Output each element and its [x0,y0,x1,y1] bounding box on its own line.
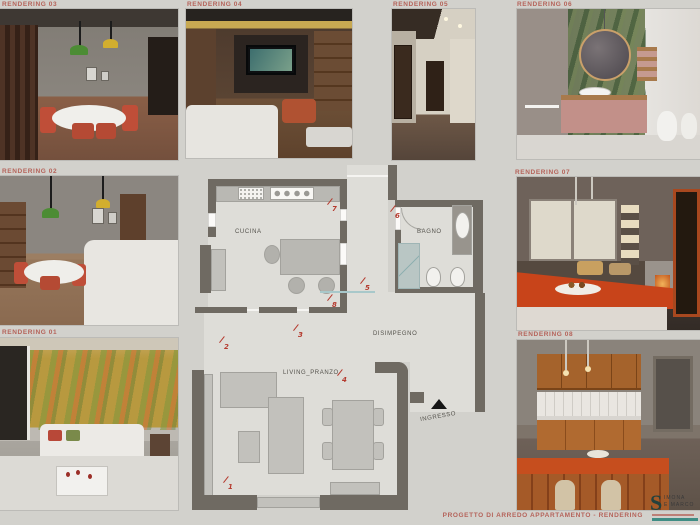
wall-frame [92,208,104,224]
green-cushion [66,430,80,441]
wall-frame [108,212,117,224]
doorway-shape [148,37,178,115]
lower-cabinets [537,420,641,450]
wall [397,397,408,510]
rendering-02-image [0,176,178,325]
designer-logo: S IMONA E MARCO [650,492,698,523]
room-label-disimpegno: DISIMPEGNO [373,331,417,337]
wall [208,186,216,213]
red-chair [40,276,60,290]
orange-chair [282,99,316,123]
wall [309,307,347,313]
wall [195,307,247,313]
pendant-cord [565,340,567,370]
window [0,346,30,440]
rendering-04-label: RENDERING 04 [187,1,242,9]
rendering-08-image [517,340,700,510]
bidet [681,113,697,139]
rendering-08-label: RENDERING 08 [518,331,573,339]
rendering-03-label: RENDERING 03 [2,1,57,9]
red-cushion [48,430,62,441]
end-door [426,61,444,111]
logo-tagline-rule [652,514,694,516]
wall [410,392,424,403]
floor-plan: CUCINA BAGNO DISIMPEGNO LIVING_PRANZO IN… [180,165,512,515]
wall [320,495,408,510]
presentation-board: RENDERING 03 RENDERING 04 RENDERING 05 R… [0,0,700,525]
red-chair [96,123,116,139]
bath-sink-plan [455,212,470,239]
towel-rail [525,105,559,108]
wood-chair [577,261,603,275]
chair-plan [373,408,384,426]
food [565,281,591,289]
wardrobe-shape [0,25,38,160]
window-plan [340,209,347,221]
board-title: PROGETTO DI ARREDO APPARTAMENTO - RENDER… [443,512,643,519]
pendant-bulb [563,370,569,376]
tropical-wallpaper [28,350,178,430]
rendering-03-image [0,9,178,160]
room-label-bagno: BAGNO [417,229,442,235]
chair-plan [373,442,384,460]
green-pendant-lamp [42,208,59,218]
wall-frame [101,71,109,81]
window [653,356,693,432]
wall [208,227,216,237]
pendant-cord [79,21,81,47]
ceiling-spotlight [458,24,462,28]
logo-name-line2: E MARCO [664,502,694,508]
wardrobe-plan [204,374,213,506]
wood-shelves [314,31,352,111]
wood-chair [609,263,631,275]
toilet-plan [426,267,441,287]
kitchen-tall-unit-plan [211,249,226,291]
wine-glass [88,474,92,479]
pendant-cord [110,21,112,41]
pink-vanity [561,100,647,133]
camera-marker-6: 6 [395,212,400,220]
camera-marker-7: 7 [332,205,337,213]
stool [601,480,621,510]
window-mullion [571,199,574,261]
island-body [517,474,669,510]
rendering-06-image [517,9,700,159]
wall-shelf [637,47,657,81]
logo-name-line1: IMONA [664,495,685,501]
camera-marker-1: 1 [228,483,233,491]
window-plan [340,243,347,265]
coffee-table [56,466,108,496]
pendant-cord [587,340,589,366]
rendering-04-image [186,9,352,158]
wall [192,495,257,510]
dark-door [394,45,412,119]
corridor-floor [347,165,388,295]
side-table [150,434,170,456]
camera-marker-8: 8 [332,301,337,309]
stove-plan [270,187,314,200]
dining-table-plan [332,400,374,470]
stool-plan [288,277,305,294]
round-mirror [579,29,631,81]
camera-marker-2: 2 [224,343,229,351]
stool-plan [264,245,280,264]
yellow-pendant-lamp [103,39,118,48]
window-plan [208,213,216,227]
camera-marker-5: 5 [365,284,370,292]
rendering-05-image [392,9,475,160]
orange-framed-door [673,189,700,317]
lit-niche-shelves [621,205,639,265]
white-sofa [186,105,278,158]
rendering-01-image [0,338,178,510]
camera-marker-4: 4 [342,376,347,384]
orange-island-counter [517,458,669,474]
stool [555,480,575,510]
wall [475,293,485,412]
wall [340,265,347,312]
bowl [587,450,609,458]
rendering-06-label: RENDERING 06 [517,1,572,9]
upper-cabinets [537,354,641,390]
white-sofa [84,240,178,325]
logo-teal-rule [652,518,698,521]
door-sill [247,309,259,311]
coffee-table-plan [238,431,260,463]
pendant-cord [102,176,104,201]
curved-wall [397,362,408,402]
table-base [517,307,667,330]
coffee-table [306,127,352,147]
green-pendant-lamp [70,45,88,55]
pendant-cord [604,9,605,31]
toilet [657,111,677,141]
wall [192,370,204,510]
pendant-bulb [585,366,591,372]
wall [473,200,483,293]
island-plan [280,239,340,275]
logo-initial: S [650,492,662,514]
shower-plan [398,243,420,289]
red-chair [72,123,94,139]
wall [340,179,347,209]
right-wall [450,39,475,123]
tv-picture [250,49,292,71]
wall [340,221,347,243]
room-label-living-pranzo: LIVING_PRANZO [283,370,339,376]
wine-glass [66,472,70,477]
rendering-07-label: RENDERING 07 [515,169,570,177]
wall [388,165,397,200]
yellow-pendant-lamp [96,199,110,208]
rendering-07-image [517,177,700,330]
ceiling-spotlight [444,17,448,21]
entrance-arrow-icon [431,399,447,409]
bidet-plan [450,267,465,287]
pendant-cord [50,176,52,210]
room-label-ingresso: INGRESSO [420,411,457,423]
tv-unit-plan [330,482,380,495]
sink-plan [238,187,264,200]
wall [200,245,211,293]
wine-glass [76,470,80,475]
rendering-01-label: RENDERING 01 [2,329,57,337]
rendering-05-label: RENDERING 05 [393,1,448,9]
room-label-cucina: CUCINA [235,229,262,235]
wall-frame [86,67,97,81]
tile-backsplash [537,392,641,418]
wall [208,179,347,186]
rendering-02-label: RENDERING 02 [2,168,57,176]
pendant-cord [591,177,593,199]
door-sill [297,309,309,311]
pendant-cord [575,177,577,205]
camera-marker-3: 3 [298,331,303,339]
door-sill [347,175,388,177]
sofa-plan [268,397,304,474]
window-sill-plan [257,497,320,508]
wall [259,307,297,313]
